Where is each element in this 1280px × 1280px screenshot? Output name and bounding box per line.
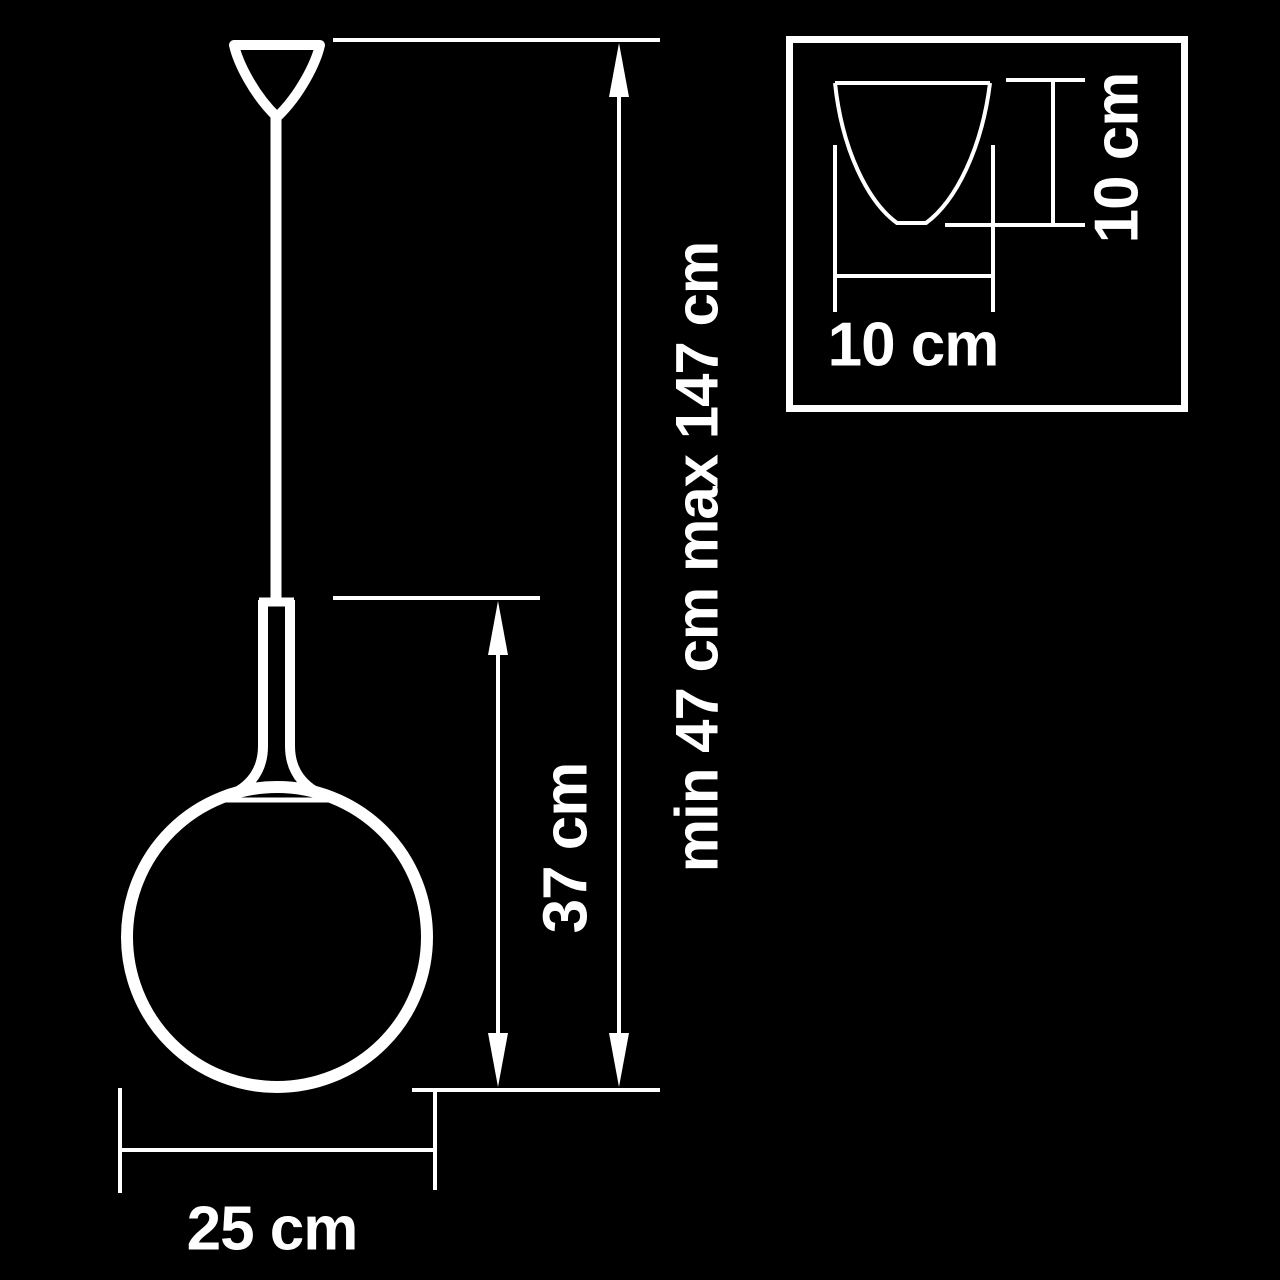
sphere-shade-outline: [127, 787, 427, 1087]
shade-height-label: 37 cm: [531, 763, 602, 934]
inset-canopy-outline: [835, 83, 990, 223]
canopy-height-label: 10 cm: [1082, 73, 1153, 244]
ceiling-canopy-outline: [234, 45, 320, 117]
shade-height-arrow-up: [488, 601, 508, 655]
shade-diameter-label: 25 cm: [187, 1194, 358, 1265]
dimension-diagram: min 47 cm max 147 cm 37 cm 25 cm 10 cm 1…: [0, 0, 1280, 1280]
overall-height-arrow-up: [609, 43, 629, 97]
canopy-width-label: 10 cm: [828, 310, 999, 381]
overall-height-label: min 47 cm max 147 cm: [663, 242, 732, 872]
dimension-lines: [120, 40, 660, 1193]
pendant-lamp-drawing: [127, 45, 427, 1087]
shade-height-arrow-down: [488, 1033, 508, 1087]
overall-height-arrow-down: [609, 1033, 629, 1087]
